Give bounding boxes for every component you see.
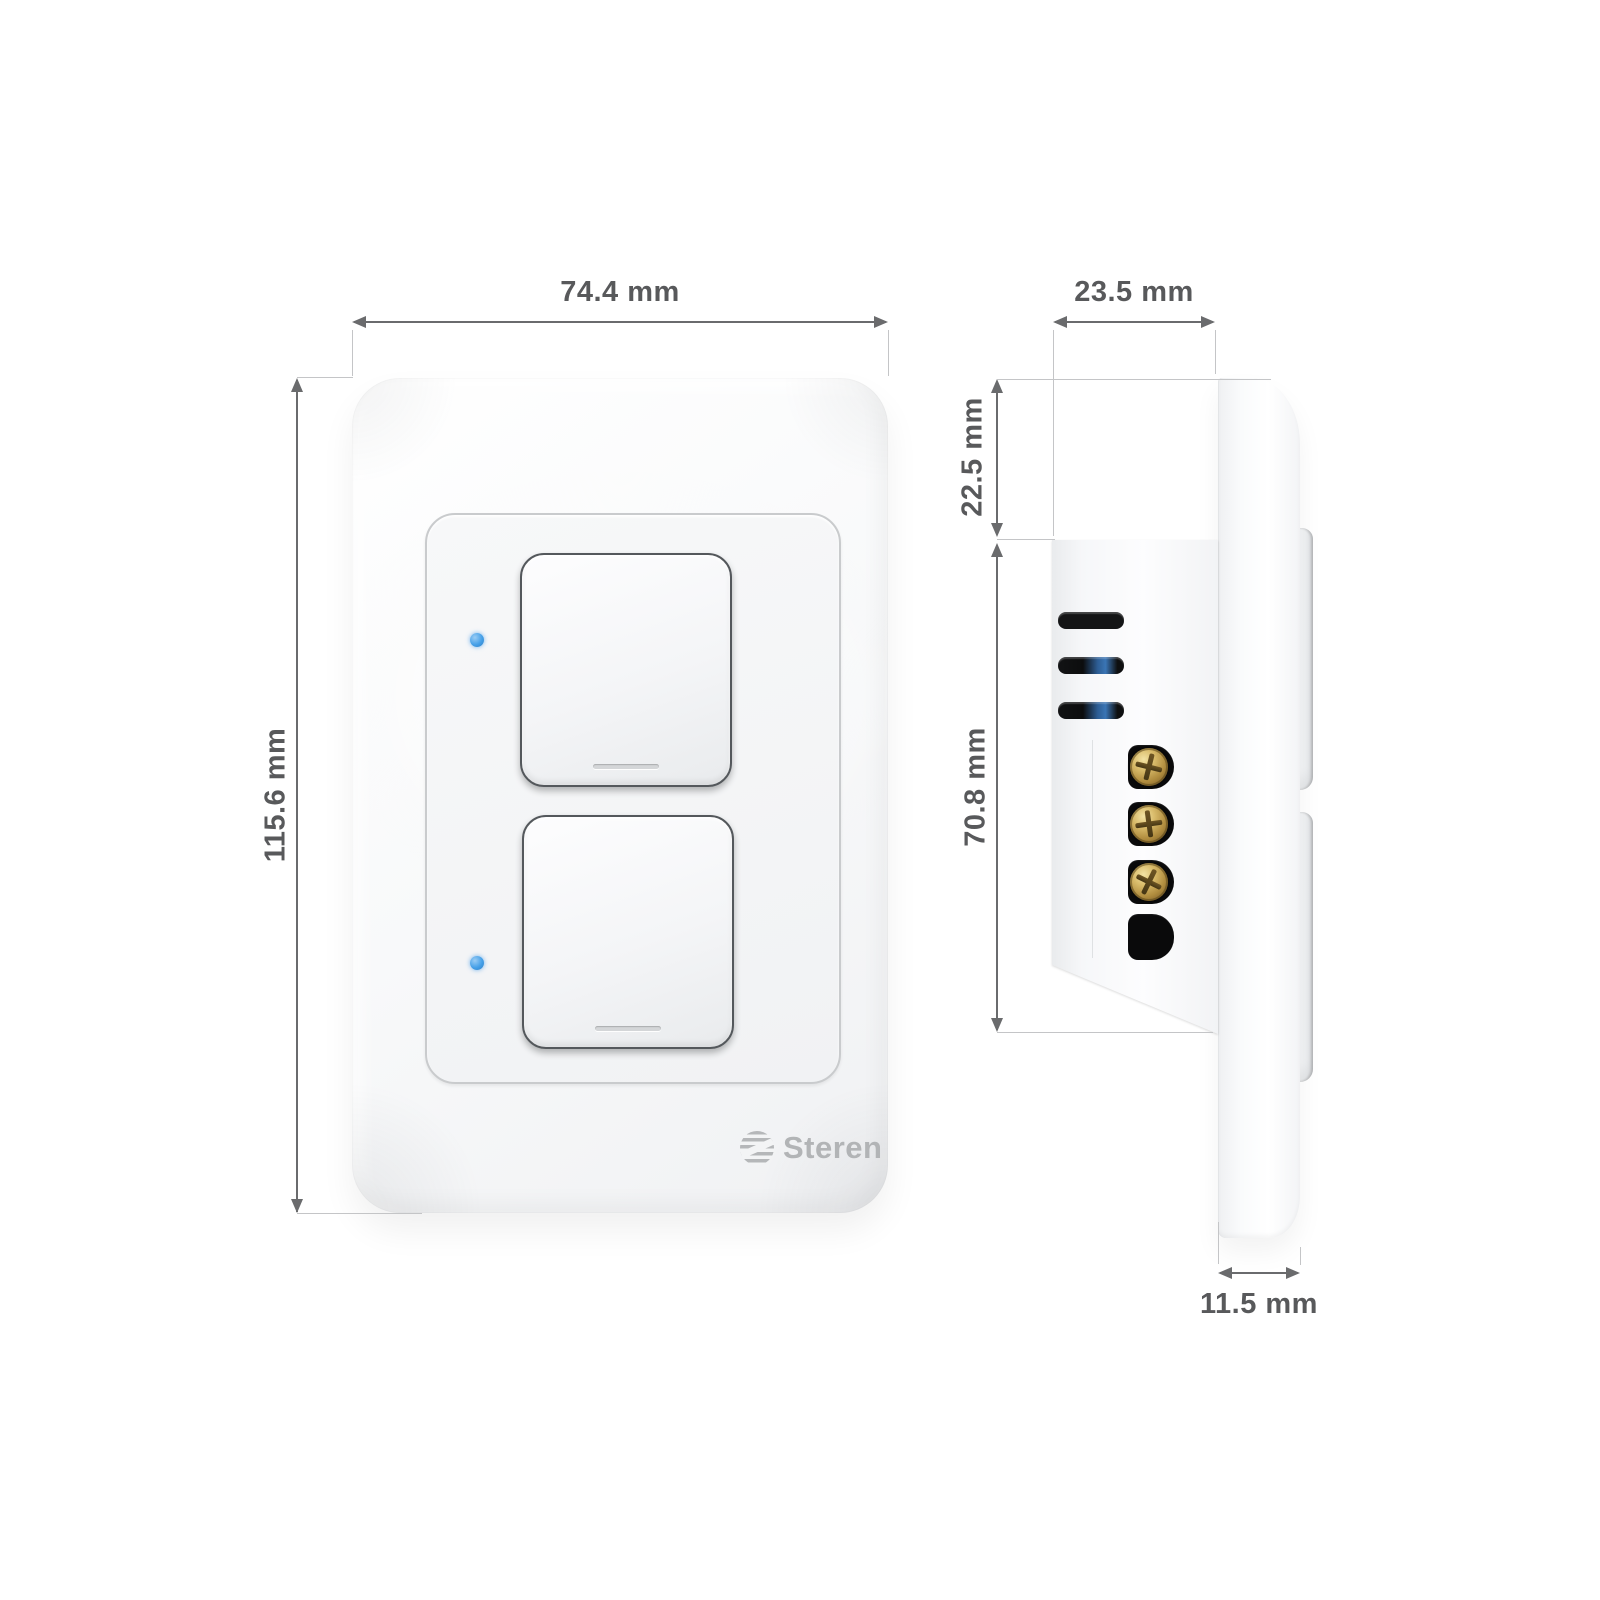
terminal-screw-icon — [1130, 805, 1168, 843]
terminal-screw-icon — [1130, 863, 1168, 901]
terminal-screw-icon — [1130, 748, 1168, 786]
side-view — [0, 0, 1600, 1600]
side-switch-body — [1052, 540, 1218, 1034]
terminal-slot — [1128, 860, 1174, 904]
vent-slot-icon — [1058, 702, 1124, 719]
side-wall-plate-edge — [1218, 378, 1300, 1238]
vent-slot-icon — [1058, 612, 1124, 629]
terminal-slot-empty — [1128, 914, 1174, 960]
housing-step-edge — [1092, 740, 1093, 958]
terminal-slot — [1128, 802, 1174, 846]
terminal-slot — [1128, 745, 1174, 789]
vent-slot-icon — [1058, 657, 1124, 674]
product-dimension-diagram: Steren 74.4 mm — [0, 0, 1600, 1600]
